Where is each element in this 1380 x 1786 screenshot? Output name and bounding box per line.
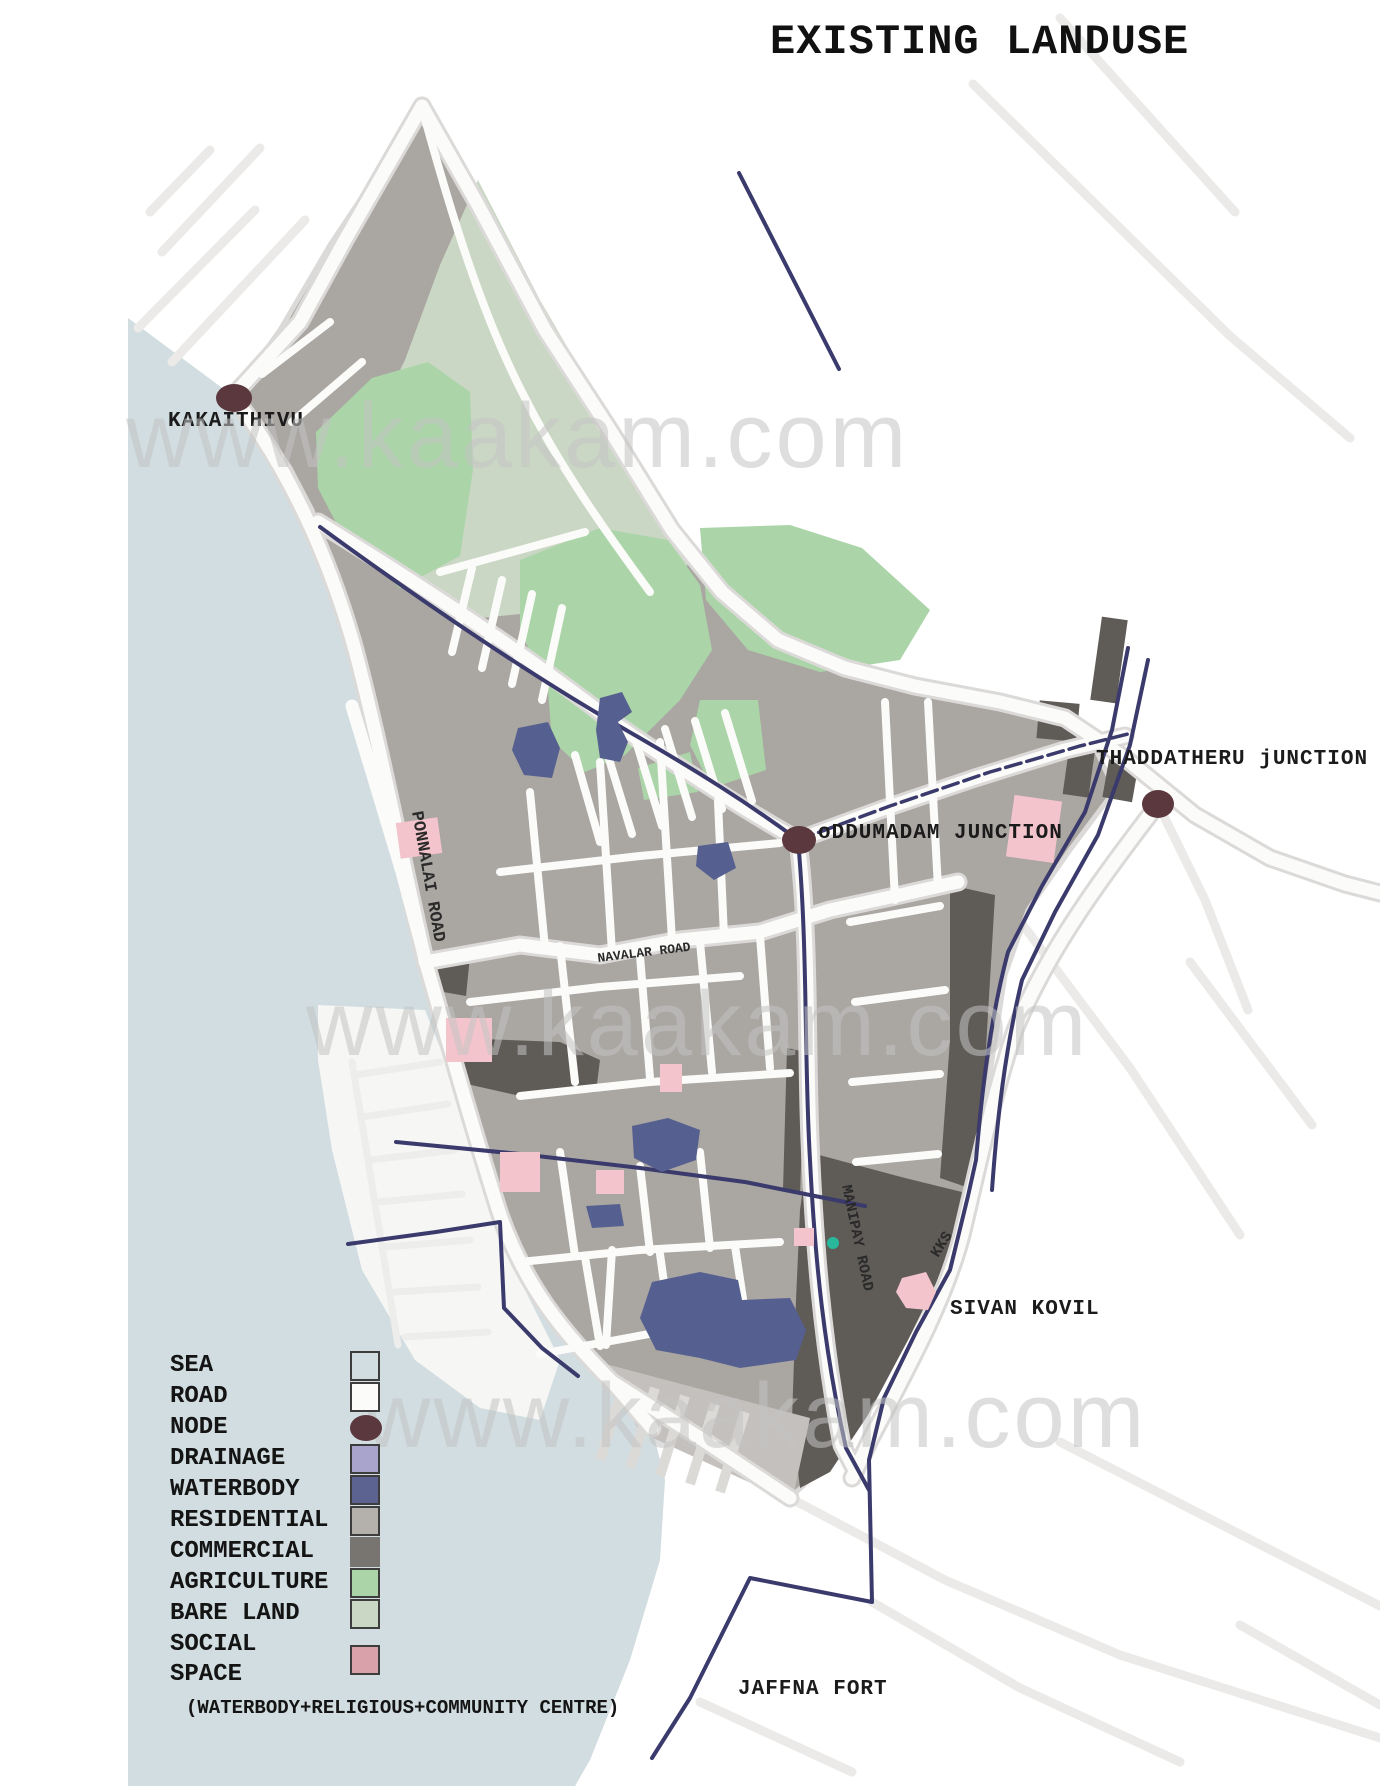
legend-row-commercial: COMMERCIAL <box>170 1536 590 1567</box>
legend-row-bareland: BARE LAND <box>170 1598 590 1629</box>
sea-swatch <box>350 1351 380 1381</box>
road-swatch <box>350 1382 380 1412</box>
legend-label: BARE LAND <box>170 1599 350 1629</box>
legend: SEA ROAD NODE DRAINAGE WATERBODY RESIDEN… <box>170 1350 590 1719</box>
label-thaddatheru-junction: THADDATHERU jUNCTION <box>1096 748 1368 771</box>
node-swatch <box>350 1415 382 1441</box>
legend-row-sea: SEA <box>170 1350 590 1381</box>
legend-label: SEA <box>170 1351 350 1381</box>
legend-row-residential: RESIDENTIAL <box>170 1505 590 1536</box>
legend-row-agriculture: AGRICULTURE <box>170 1567 590 1598</box>
node-kakaithivu <box>216 384 252 412</box>
bareland-swatch <box>350 1599 380 1629</box>
legend-label: NODE <box>170 1413 350 1443</box>
legend-label: RESIDENTIAL <box>170 1506 350 1536</box>
agriculture-swatch <box>350 1568 380 1598</box>
legend-label: WATERBODY <box>170 1475 350 1505</box>
label-sivan-kovil: SIVAN KOVIL <box>950 1298 1100 1321</box>
legend-note: (WATERBODY+RELIGIOUS+COMMUNITY CENTRE) <box>170 1697 590 1719</box>
legend-label: DRAINAGE <box>170 1444 350 1474</box>
legend-label: ROAD <box>170 1382 350 1412</box>
community-centre-dot <box>827 1237 839 1249</box>
page-title: EXISTING LANDUSE <box>770 18 1189 66</box>
social-space-swatch <box>350 1645 380 1675</box>
legend-label: COMMERCIAL <box>170 1537 350 1567</box>
legend-row-node: NODE <box>170 1412 590 1443</box>
legend-row-waterbody: WATERBODY <box>170 1474 590 1505</box>
legend-row-road: ROAD <box>170 1381 590 1412</box>
legend-label: SOCIALSPACE <box>170 1630 350 1690</box>
waterbody-swatch <box>350 1475 380 1505</box>
residential-swatch <box>350 1506 380 1536</box>
drainage-swatch <box>350 1444 380 1474</box>
node-oddumadam <box>782 826 816 854</box>
label-kakaithivu: KAKAITHIVU <box>168 410 304 433</box>
legend-label: AGRICULTURE <box>170 1568 350 1598</box>
label-oddumadam-junction: oDDUMADAM JUNCTION <box>818 822 1063 845</box>
legend-row-social-space: SOCIALSPACE <box>170 1629 590 1691</box>
commercial-swatch <box>350 1537 380 1567</box>
node-thaddatheru <box>1142 790 1174 818</box>
label-jaffna-fort: JAFFNA FORT <box>738 1678 888 1701</box>
legend-row-drainage: DRAINAGE <box>170 1443 590 1474</box>
